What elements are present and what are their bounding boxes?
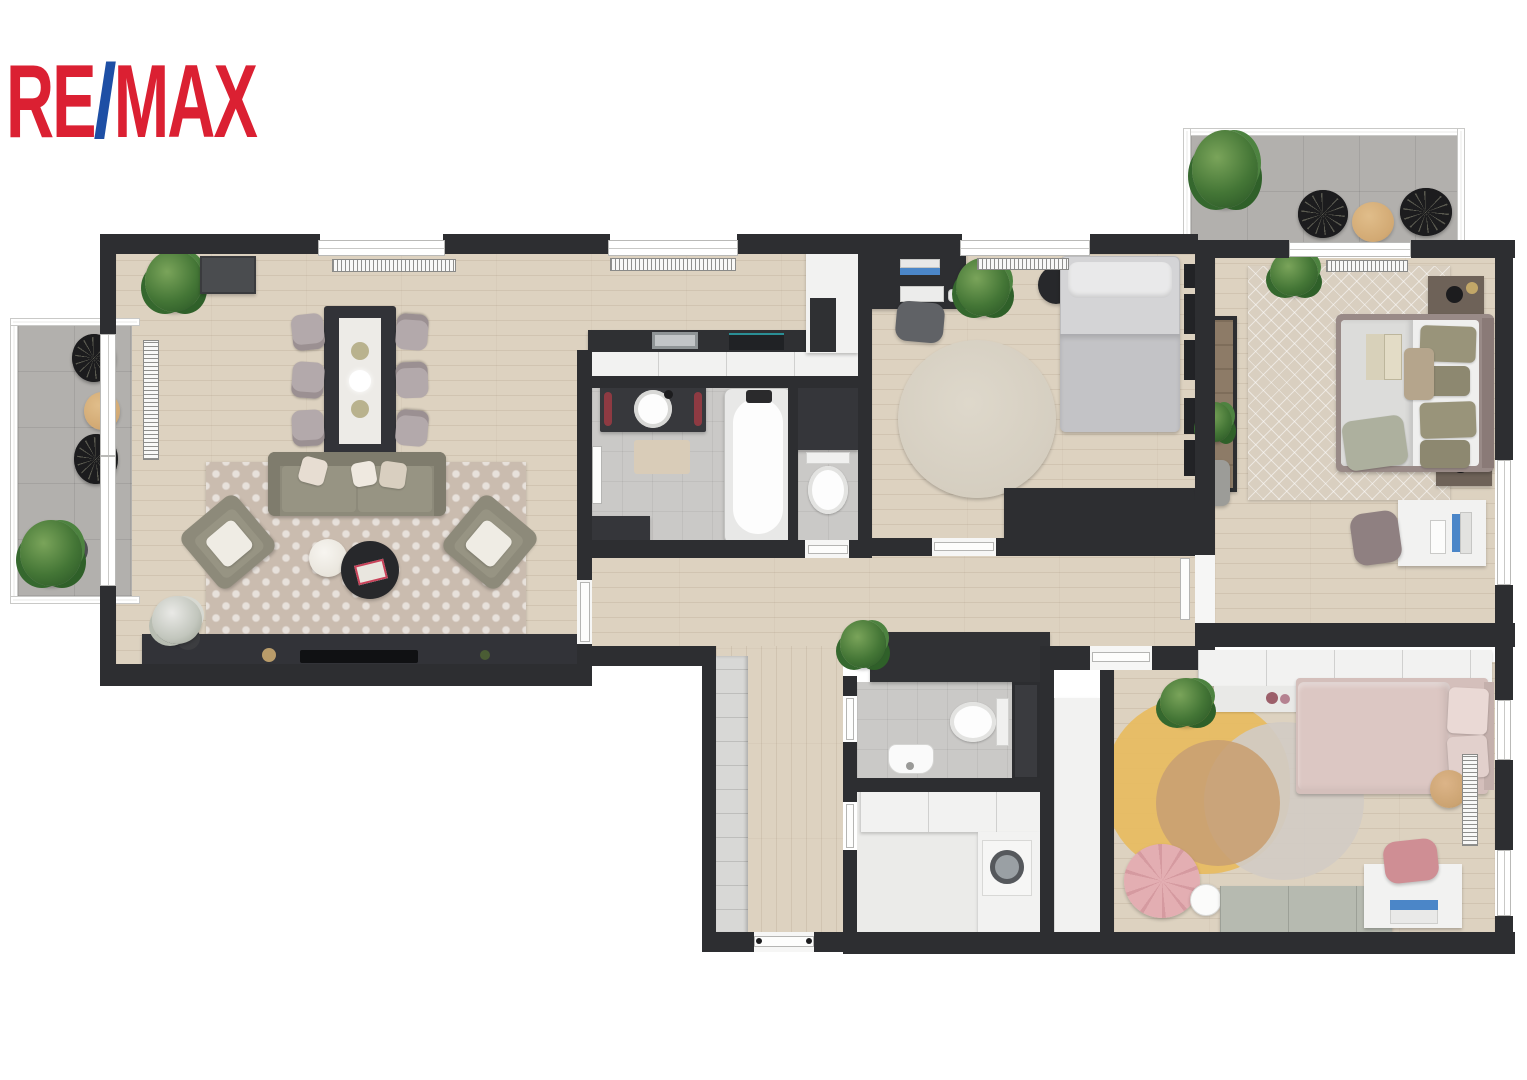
utility-counter bbox=[860, 790, 1040, 832]
wall bbox=[1495, 646, 1513, 700]
window bbox=[1497, 700, 1511, 760]
keyboard bbox=[900, 286, 944, 302]
radiator bbox=[332, 259, 456, 272]
wall bbox=[857, 778, 1040, 792]
balcony-left-railing bbox=[10, 318, 18, 604]
toilet-tank bbox=[996, 698, 1009, 746]
door-kids bbox=[1092, 652, 1150, 662]
bath-faucet bbox=[746, 390, 772, 403]
towel-rail bbox=[604, 392, 612, 426]
open-book bbox=[1366, 334, 1402, 380]
bed-blanket bbox=[1060, 334, 1180, 432]
study-round-rug bbox=[898, 340, 1056, 498]
hall-closet bbox=[716, 656, 748, 934]
keyboard bbox=[1430, 520, 1446, 554]
balcony-left-railing bbox=[10, 318, 140, 326]
washing-machine-door bbox=[990, 850, 1024, 884]
door-hinge bbox=[756, 938, 762, 944]
monitor-screen bbox=[900, 268, 940, 275]
bathtub-inner bbox=[733, 398, 783, 534]
table-plate bbox=[351, 342, 369, 360]
bed-pillow-olive bbox=[1420, 440, 1470, 468]
bed-pillow bbox=[1068, 262, 1172, 298]
wall bbox=[843, 676, 857, 696]
glass-panel bbox=[1012, 682, 1040, 780]
wall bbox=[577, 540, 805, 558]
door-opening bbox=[1195, 555, 1215, 623]
window bbox=[608, 240, 738, 256]
study-sideboard bbox=[1004, 488, 1196, 540]
dining-chair bbox=[290, 312, 326, 351]
laptop-screen bbox=[1390, 900, 1438, 910]
wall bbox=[858, 234, 872, 556]
bed-pillow-tan bbox=[1404, 348, 1434, 400]
monitor bbox=[900, 259, 940, 268]
floor-lamp bbox=[1190, 884, 1222, 916]
balcony-door bbox=[100, 456, 116, 586]
wall bbox=[1152, 646, 1198, 670]
kitchen-tall-cabinet-inset bbox=[810, 298, 836, 352]
door-wc1 bbox=[808, 545, 848, 554]
kitchen-sink bbox=[652, 332, 698, 349]
wall bbox=[577, 376, 872, 388]
monitor-screen bbox=[1452, 514, 1460, 552]
dining-chair bbox=[395, 361, 428, 398]
wall bbox=[788, 388, 798, 540]
balcony-left-railing bbox=[10, 596, 140, 604]
sofa-pillow bbox=[350, 460, 378, 488]
wall bbox=[737, 234, 962, 254]
radiator bbox=[143, 340, 159, 460]
door-wc2 bbox=[846, 698, 854, 740]
bed-pillow-olive bbox=[1419, 401, 1476, 439]
radiator bbox=[1326, 260, 1408, 272]
window bbox=[1497, 460, 1511, 585]
table-lamp bbox=[1446, 286, 1463, 303]
dining-chair bbox=[291, 409, 325, 447]
bed-headboard bbox=[1482, 318, 1494, 468]
wall bbox=[100, 234, 320, 254]
wall bbox=[1495, 916, 1513, 954]
kids-desk-chair bbox=[1382, 837, 1440, 884]
living-room-plant bbox=[145, 250, 203, 312]
toilet bbox=[808, 466, 848, 514]
wall bbox=[1100, 662, 1114, 936]
console-decor bbox=[480, 650, 490, 660]
basin-faucet bbox=[664, 390, 673, 399]
lamp-decor bbox=[1466, 282, 1478, 294]
balcony-chair bbox=[1400, 188, 1452, 236]
balcony-chair bbox=[1298, 190, 1348, 238]
balcony-plant bbox=[1192, 130, 1258, 208]
pouf bbox=[1124, 844, 1200, 918]
dining-chair bbox=[394, 409, 429, 448]
dining-chair bbox=[291, 361, 325, 399]
cooktop bbox=[729, 333, 784, 350]
window bbox=[1497, 850, 1511, 916]
wc-storage-shelf bbox=[792, 386, 858, 450]
kitchen-cabinet-front bbox=[590, 352, 860, 378]
table-bowl bbox=[349, 370, 371, 392]
shelf-decor bbox=[1280, 694, 1290, 704]
window bbox=[318, 240, 445, 256]
towel-rail bbox=[694, 392, 702, 426]
monitor bbox=[1460, 512, 1472, 554]
wall bbox=[1495, 253, 1513, 460]
balcony-table bbox=[1352, 202, 1394, 242]
radiator bbox=[977, 258, 1069, 270]
wall bbox=[1195, 253, 1215, 555]
sofa-pillow bbox=[378, 460, 407, 489]
hall-cabinet bbox=[870, 632, 1050, 682]
bed-throw bbox=[1341, 414, 1409, 472]
dining-chair bbox=[395, 313, 429, 351]
wall bbox=[996, 538, 1197, 556]
basin-faucet bbox=[906, 762, 914, 770]
window bbox=[960, 240, 1090, 256]
wall bbox=[584, 646, 714, 666]
desk-chair bbox=[1349, 509, 1404, 567]
balcony-plant bbox=[20, 520, 82, 586]
wall bbox=[843, 932, 1102, 954]
wall bbox=[1495, 760, 1513, 850]
door-study bbox=[934, 542, 994, 551]
bath-mat bbox=[634, 440, 690, 474]
kids-plant bbox=[1160, 678, 1212, 726]
bar-cabinet bbox=[200, 256, 256, 294]
shelf-decor bbox=[1266, 692, 1278, 704]
console-decor bbox=[262, 648, 276, 662]
radiator bbox=[610, 258, 736, 271]
door-hinge bbox=[806, 938, 812, 944]
tall-cabinet bbox=[1054, 698, 1100, 934]
wall bbox=[100, 234, 116, 334]
door-utility bbox=[846, 804, 854, 848]
wall bbox=[1090, 234, 1198, 254]
floor-plan bbox=[0, 0, 1527, 1080]
sofa-arm bbox=[268, 452, 280, 516]
floor-plan-page: RE / MAX bbox=[0, 0, 1527, 1080]
door-master bbox=[1180, 558, 1190, 620]
balcony-door bbox=[1289, 242, 1411, 257]
wall bbox=[1040, 646, 1090, 670]
wall bbox=[1495, 585, 1513, 646]
balcony-right-railing bbox=[1457, 128, 1465, 252]
window bbox=[100, 334, 116, 456]
wall bbox=[702, 646, 716, 950]
sofa-arm bbox=[434, 452, 446, 516]
wall bbox=[1040, 670, 1054, 936]
wall bbox=[843, 742, 857, 802]
kids-bed-duvet bbox=[1298, 682, 1450, 790]
radiator bbox=[1462, 754, 1478, 846]
office-chair bbox=[894, 300, 945, 344]
toilet-tank bbox=[806, 452, 850, 464]
table-plate bbox=[351, 400, 369, 418]
toilet bbox=[950, 702, 996, 742]
hall-plant bbox=[840, 620, 886, 668]
tv bbox=[300, 650, 418, 663]
wall bbox=[1195, 623, 1515, 647]
wall bbox=[100, 664, 584, 686]
wall bbox=[702, 932, 754, 952]
wall bbox=[443, 234, 610, 254]
door-bathroom bbox=[592, 446, 602, 504]
door-living-hall bbox=[580, 582, 590, 642]
wall bbox=[872, 538, 932, 556]
entrance-door bbox=[754, 936, 814, 947]
flower-vase bbox=[152, 596, 202, 644]
wall bbox=[843, 850, 857, 936]
sofa bbox=[268, 452, 446, 516]
kids-pillow bbox=[1447, 687, 1489, 735]
wall bbox=[1100, 932, 1515, 954]
